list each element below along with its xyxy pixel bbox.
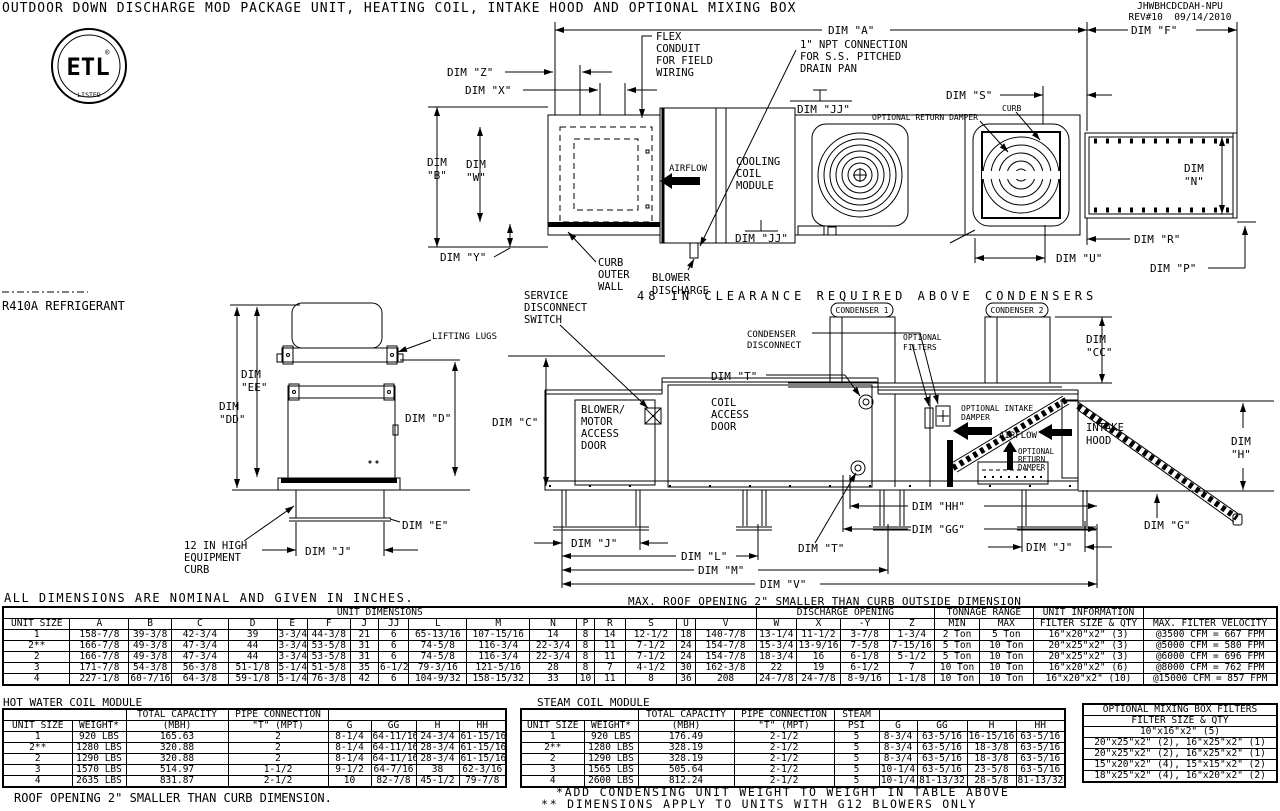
table-cell: 8 — [576, 630, 594, 641]
table-cell: 11 — [595, 652, 625, 663]
table-cell: 28-3/4 — [416, 743, 459, 754]
airflow-arrow-icon — [660, 173, 700, 189]
airflow-label: AIRFLOW — [669, 164, 708, 174]
table-cell: 176.49 — [638, 732, 734, 743]
table-cell: 81-13/32 — [917, 776, 967, 788]
dim-jj-top-label: DIM "JJ" — [797, 103, 850, 116]
table-cell: 140-7/8 — [695, 630, 756, 641]
table-cell: 79-7/8 — [459, 776, 506, 788]
table-cell: 4-1/2 — [625, 663, 677, 674]
hood-airflow-arrow-icon — [1038, 424, 1072, 440]
dim-b-label: DIM"B" — [427, 156, 447, 182]
table-cell: 31 — [350, 641, 378, 652]
table-cell: 6 — [378, 641, 408, 652]
column-header: FILTER SIZE & QTY — [1033, 619, 1144, 630]
table-cell: 61-15/16 — [459, 743, 506, 754]
table-cell: 208 — [695, 674, 756, 686]
table-cell: 59-1/8 — [228, 674, 277, 686]
column-header: (MBH) — [638, 721, 734, 732]
table-cell: 11-1/2 — [797, 630, 841, 641]
table-cell: 1280 LBS — [72, 743, 126, 754]
table-cell: 24 — [677, 641, 695, 652]
column-header: UNIT INFORMATION — [1033, 607, 1144, 619]
table-cell: 2-1/2 — [734, 776, 834, 788]
etl-listed-text: LISTED — [77, 91, 101, 99]
table-cell: 6-1/2 — [378, 663, 408, 674]
table-row: 2**166-7/849-3/847-3/4443-3/453-5/831674… — [3, 641, 1277, 652]
dim-p-label: DIM "P" — [1150, 262, 1196, 275]
column-header — [3, 709, 126, 721]
table-cell: 2-1/2 — [734, 765, 834, 776]
table-cell: @8000 CFM = 762 FPM — [1144, 663, 1277, 674]
table-cell: 3-3/4 — [277, 630, 307, 641]
column-header — [879, 709, 1065, 721]
table-cell: 10-1/4 — [879, 765, 917, 776]
table-cell: 63-5/16 — [917, 754, 967, 765]
table-row: 3171-7/854-3/856-3/851-1/85-1/451-5/8356… — [3, 663, 1277, 674]
table-cell: 22 — [756, 663, 797, 674]
table-cell: 9-1/2 — [328, 765, 371, 776]
table-cell: 10 — [328, 776, 371, 788]
column-header: "T" (MPT) — [228, 721, 328, 732]
table-cell: 3-7/8 — [840, 630, 889, 641]
nominal-dimensions-note: ALL DIMENSIONS ARE NOMINAL AND GIVEN IN … — [4, 591, 414, 605]
table-cell: 23-5/8 — [967, 765, 1016, 776]
table-cell: 74-5/8 — [409, 641, 467, 652]
table-cell: 2 — [521, 754, 584, 765]
table-cell: 812.24 — [638, 776, 734, 788]
table-cell: 19 — [797, 663, 841, 674]
table-cell: 24-3/4 — [416, 732, 459, 743]
dim-l-label: DIM "L" — [681, 550, 727, 563]
clearance-note: 48 IN CLEARANCE REQUIRED ABOVE CONDENSER… — [637, 289, 1097, 303]
table-cell: 60-7/16 — [129, 674, 172, 686]
table-cell: 8 — [576, 663, 594, 674]
table-cell: 56-3/8 — [171, 663, 228, 674]
drawing-sheet: OUTDOOR DOWN DISCHARGE MOD PACKAGE UNIT,… — [0, 0, 1280, 811]
table-cell: 76-3/8 — [307, 674, 350, 686]
table-cell: 24 — [677, 652, 695, 663]
table-cell: 8-1/4 — [328, 732, 371, 743]
table-cell: 53-5/8 — [307, 641, 350, 652]
table-cell: 7-15/16 — [889, 641, 935, 652]
plan-unit-outline — [548, 108, 1237, 258]
table-cell: 8 — [625, 674, 677, 686]
table-cell: 10 Ton — [935, 674, 980, 686]
dim-w-label: DIM"W" — [466, 158, 486, 184]
table-cell: 5-1/2 — [889, 652, 935, 663]
table-cell: 10 Ton — [979, 652, 1033, 663]
table-cell: 1-1/2 — [228, 765, 328, 776]
column-header: P — [576, 619, 594, 630]
column-header: FILTER SIZE & QTY — [1083, 716, 1277, 727]
table-cell: 3-3/4 — [277, 641, 307, 652]
column-header — [1144, 607, 1277, 619]
column-header: S — [625, 619, 677, 630]
table-cell: 31 — [350, 652, 378, 663]
dim-x-label: DIM "X" — [465, 84, 511, 97]
table-cell: 2** — [3, 743, 72, 754]
table-cell: 1280 LBS — [584, 743, 638, 754]
condenser2-label: CONDENSER 2 — [991, 306, 1044, 315]
table-cell: 121-5/16 — [467, 663, 530, 674]
equipment-curb-callout: 12 IN HIGHEQUIPMENTCURB — [184, 540, 247, 576]
table-cell: 1565 LBS — [584, 765, 638, 776]
table-cell: 28-5/8 — [967, 776, 1016, 788]
table-cell: 831.87 — [126, 776, 228, 788]
table-cell: 1-3/4 — [889, 630, 935, 641]
table-cell: @15000 CFM = 857 FPM — [1144, 674, 1277, 686]
column-header: V — [695, 619, 756, 630]
column-header: F — [307, 619, 350, 630]
table-cell: 63-5/16 — [1016, 765, 1065, 776]
optional-filters-callout: OPTIONALFILTERS — [903, 333, 942, 352]
dim-v-label: DIM "V" — [760, 578, 806, 591]
dim-hh-label: DIM "HH" — [912, 500, 965, 513]
table-cell: 63-5/16 — [1016, 732, 1065, 743]
lifting-lugs-label: LIFTING LUGS — [432, 332, 497, 342]
table-cell: 11 — [595, 674, 625, 686]
table-cell: 8-3/4 — [879, 743, 917, 754]
table-cell: 227-1/8 — [70, 674, 129, 686]
table-cell: 49-3/8 — [129, 641, 172, 652]
column-header: "T" (MPT) — [734, 721, 834, 732]
table-cell: 158-15/32 — [467, 674, 530, 686]
table-cell: 44-3/8 — [307, 630, 350, 641]
dim-dd-label: DIM"DD" — [219, 400, 246, 426]
table-cell: @3500 CFM = 667 FPM — [1144, 630, 1277, 641]
table-cell: 7 — [595, 663, 625, 674]
table-cell: 63-5/16 — [917, 765, 967, 776]
table-cell: 2 — [3, 652, 70, 663]
header-row: OPTIONAL MIXING BOX FILTERS — [1083, 704, 1277, 716]
table-cell: 5 Ton — [935, 652, 980, 663]
table-cell: 10-1/4 — [879, 776, 917, 788]
table-cell: 14 — [595, 630, 625, 641]
table-cell: 18-3/8 — [967, 743, 1016, 754]
table-cell: 10 — [576, 674, 594, 686]
table-cell: 10 Ton — [979, 641, 1033, 652]
column-header: C — [171, 619, 228, 630]
npt-drain-callout: 1" NPT CONNECTIONFOR S.S. PITCHEDDRAIN P… — [800, 39, 907, 75]
table-cell: 28-3/4 — [416, 754, 459, 765]
column-header: Z — [889, 619, 935, 630]
table-cell: 8-1/4 — [328, 754, 371, 765]
table-cell: 53-5/8 — [307, 652, 350, 663]
table-row: 1920 LBS165.6328-1/464-11/1624-3/461-15/… — [3, 732, 506, 743]
table-cell: 1290 LBS — [72, 754, 126, 765]
table-cell: 36 — [677, 674, 695, 686]
g12-blowers-footnote: ** DIMENSIONS APPLY TO UNITS WITH G12 BL… — [541, 797, 977, 811]
table-cell: 21 — [350, 630, 378, 641]
table-cell: 10 Ton — [979, 674, 1033, 686]
table-row: 2**1280 LBS328.192-1/258-3/463-5/1618-3/… — [521, 743, 1065, 754]
table-cell: 63-5/16 — [1016, 743, 1065, 754]
table-row: 31565 LBS505.642-1/2510-1/463-5/1623-5/8… — [521, 765, 1065, 776]
table-row: 1158-7/839-3/842-3/4393-3/444-3/821665-1… — [3, 630, 1277, 641]
table-row: 42635 LBS831.872-1/21082-7/845-1/279-7/8 — [3, 776, 506, 788]
cooling-coil-module-label: COOLINGCOILMODULE — [736, 156, 780, 192]
page-title: OUTDOOR DOWN DISCHARGE MOD PACKAGE UNIT,… — [2, 1, 796, 16]
optional-intake-damper-label: OPTIONAL INTAKEDAMPER — [961, 404, 1033, 422]
column-header: J — [350, 619, 378, 630]
dim-j-front-label: DIM "J" — [305, 545, 351, 558]
table-cell: 10 Ton — [979, 663, 1033, 674]
dim-y-label: DIM "Y" — [440, 251, 486, 264]
column-header: PSI — [834, 721, 879, 732]
column-header: B — [129, 619, 172, 630]
table-cell: 44 — [228, 641, 277, 652]
column-header: WEIGHT* — [584, 721, 638, 732]
column-header: PIPE CONNECTION — [734, 709, 834, 721]
table-cell: 62-3/16 — [459, 765, 506, 776]
table-row: 10"x16"x2" (5) — [1083, 727, 1277, 738]
condenser-disconnect-callout: CONDENSERDISCONNECT — [747, 330, 802, 351]
dim-jj-mid-label: DIM "JJ" — [735, 232, 788, 245]
table-cell: 64-11/16 — [371, 754, 416, 765]
table-cell: 514.97 — [126, 765, 228, 776]
table-row: 21290 LBS328.192-1/258-3/463-5/1618-3/86… — [521, 754, 1065, 765]
dim-d-label: DIM "D" — [405, 412, 451, 425]
etl-logo: ETL ® LISTED — [52, 29, 126, 103]
table-cell: 15"x20"x2" (4), 15"x15"x2" (2) — [1083, 760, 1277, 771]
table-cell: 328.19 — [638, 743, 734, 754]
column-header: TONNAGE RANGE — [935, 607, 1033, 619]
table-cell: 42 — [350, 674, 378, 686]
table-cell: 39 — [228, 630, 277, 641]
dim-u-label: DIM "U" — [1056, 252, 1102, 265]
table-cell: 3 — [521, 765, 584, 776]
table-cell: 18-3/4 — [756, 652, 797, 663]
dim-gg-label: DIM "GG" — [912, 523, 965, 536]
table-cell: 166-7/8 — [70, 652, 129, 663]
column-header: HH — [459, 721, 506, 732]
column-header: W — [756, 619, 797, 630]
table-cell: 20"x25"x2" (3) — [1033, 641, 1144, 652]
table-cell: 5 — [834, 732, 879, 743]
table-cell: 4 — [521, 776, 584, 788]
column-header: N — [530, 619, 577, 630]
table-cell: 328.19 — [638, 754, 734, 765]
table-cell: 47-3/4 — [171, 652, 228, 663]
side-unit-outline — [545, 303, 1274, 530]
table-cell: 5 Ton — [979, 630, 1033, 641]
table-cell: 2-1/2 — [734, 743, 834, 754]
refrigerant-note: R410A REFRIGERANT — [2, 299, 125, 313]
table-cell: 116-3/4 — [467, 641, 530, 652]
table-row: 2166-7/849-3/847-3/4443-3/453-5/831674-5… — [3, 652, 1277, 663]
table-cell: 5-1/4 — [277, 674, 307, 686]
table-row: 1920 LBS176.492-1/258-3/463-5/1616-15/16… — [521, 732, 1065, 743]
table-cell: 2 — [228, 732, 328, 743]
table-cell: 20"x25"x2" (3) — [1033, 652, 1144, 663]
table-cell: 8 — [576, 652, 594, 663]
column-header: L — [409, 619, 467, 630]
table-cell: 158-7/8 — [70, 630, 129, 641]
optional-return-damper-label: OPTIONAL RETURN DAMPER — [872, 113, 978, 122]
table-cell: 6-1/8 — [840, 652, 889, 663]
table-cell: 64-11/16 — [371, 743, 416, 754]
header-row: TOTAL CAPACITYPIPE CONNECTION — [3, 709, 506, 721]
column-header: WEIGHT* — [72, 721, 126, 732]
header-row: UNIT SIZEWEIGHT*(MBH)"T" (MPT)GGGHHH — [3, 721, 506, 732]
table-cell: 5-1/4 — [277, 663, 307, 674]
table-cell: @6000 CFM = 696 FPM — [1144, 652, 1277, 663]
table-cell: 18 — [677, 630, 695, 641]
table-cell: 4 — [3, 776, 72, 788]
table-cell: 54-3/8 — [129, 663, 172, 674]
table-cell: 64-3/8 — [171, 674, 228, 686]
airflow-side-label: AIRFLOW — [999, 431, 1038, 441]
table-cell: 16-15/16 — [967, 732, 1016, 743]
table-cell: 165.63 — [126, 732, 228, 743]
column-header — [328, 709, 506, 721]
table-cell: 39-3/8 — [129, 630, 172, 641]
table-cell: 10 Ton — [935, 663, 980, 674]
column-header: G — [879, 721, 917, 732]
table-row: 4227-1/860-7/1664-3/859-1/85-1/476-3/842… — [3, 674, 1277, 686]
flex-conduit-callout: FLEXCONDUITFOR FIELDWIRING — [656, 31, 713, 79]
table-cell: 7-1/2 — [625, 652, 677, 663]
table-cell: 10"x16"x2" (5) — [1083, 727, 1277, 738]
column-header: JJ — [378, 619, 408, 630]
table-cell: 28 — [530, 663, 577, 674]
column-header: E — [277, 619, 307, 630]
table-cell: 16"x20"x2" (6) — [1033, 663, 1144, 674]
table-cell: 5 Ton — [935, 641, 980, 652]
table-cell: 5 — [834, 754, 879, 765]
side-view: SERVICEDISCONNECTSWITCH DIM "C" BLOWER/M… — [492, 290, 1274, 591]
table-cell: 51-5/8 — [307, 663, 350, 674]
table-cell: 2-1/2 — [734, 732, 834, 743]
column-header: H — [416, 721, 459, 732]
table-cell: 1 — [3, 630, 70, 641]
table-cell: 2 — [3, 754, 72, 765]
column-header — [521, 709, 638, 721]
table-cell: 15-3/4 — [756, 641, 797, 652]
dim-j-left-label: DIM "J" — [571, 537, 617, 550]
table-cell: 1 — [3, 732, 72, 743]
table-cell: 5 — [834, 743, 879, 754]
table-cell: 24-7/8 — [756, 674, 797, 686]
table-cell: 38 — [416, 765, 459, 776]
table-row: 31570 LBS514.971-1/29-1/264-7/163862-3/1… — [3, 765, 506, 776]
header-row: UNIT SIZEWEIGHT*(MBH)"T" (MPT)PSIGGGHHH — [521, 721, 1065, 732]
column-header: UNIT SIZE — [3, 619, 70, 630]
dim-ee-label: DIM"EE" — [241, 368, 268, 394]
curb-outer-wall-label: CURBOUTERWALL — [598, 257, 630, 293]
column-header: MAX. FILTER VELOCITY — [1144, 619, 1277, 630]
unit-dimensions-table: UNIT DIMENSIONSDISCHARGE OPENINGTONNAGE … — [2, 606, 1278, 686]
etl-logo-text: ETL — [66, 53, 109, 81]
dim-j-right-label: DIM "J" — [1026, 541, 1072, 554]
dim-a-label: DIM "A" — [828, 24, 874, 37]
header-row: UNIT SIZEABCDEFJJJLMNPRSUVWX-YZMINMAXFIL… — [3, 619, 1277, 630]
curb-label: CURB — [1002, 104, 1021, 113]
table-cell: 63-5/16 — [1016, 754, 1065, 765]
table-cell: 8-9/16 — [840, 674, 889, 686]
table-cell: 2600 LBS — [584, 776, 638, 788]
table-cell: 6 — [378, 652, 408, 663]
column-header: X — [797, 619, 841, 630]
table-cell: 2635 LBS — [72, 776, 126, 788]
column-header: HH — [1016, 721, 1065, 732]
plan-dimension-lines — [428, 22, 1256, 270]
service-disconnect-callout: SERVICEDISCONNECTSWITCH — [524, 290, 588, 326]
column-header: M — [467, 619, 530, 630]
dim-f-label: DIM "F" — [1131, 24, 1177, 37]
column-header: GG — [371, 721, 416, 732]
condenser1-label: CONDENSER 1 — [836, 306, 889, 315]
table-cell: 2** — [3, 641, 70, 652]
column-header: UNIT DIMENSIONS — [3, 607, 756, 619]
column-header: UNIT SIZE — [521, 721, 584, 732]
table-cell: 3 — [3, 765, 72, 776]
table-cell: 20"x25"x2" (2), 16"x25"x2" (1) — [1083, 738, 1277, 749]
table-cell: 24-7/8 — [797, 674, 841, 686]
dim-r-label: DIM "R" — [1134, 233, 1180, 246]
table-cell: 30 — [677, 663, 695, 674]
doc-revision: REV#10 09/14/2010 — [1095, 12, 1265, 23]
table-row: 2**1280 LBS320.8828-1/464-11/1628-3/461-… — [3, 743, 506, 754]
table-cell: 1290 LBS — [584, 754, 638, 765]
table-cell: 2-1/2 — [228, 776, 328, 788]
front-view: DIM"EE" DIM"DD" DIM "D" LIFTING LUGS DIM… — [184, 303, 497, 576]
table-cell: 82-7/8 — [371, 776, 416, 788]
table-cell: 3 — [3, 663, 70, 674]
header-row: UNIT DIMENSIONSDISCHARGE OPENINGTONNAGE … — [3, 607, 1277, 619]
dim-c-label: DIM "C" — [492, 416, 538, 429]
table-cell: 171-7/8 — [70, 663, 129, 674]
table-cell: 8-3/4 — [879, 754, 917, 765]
plan-view: DIM "A" DIM "F" DIM "Z" DIM "X" DIM"B" D… — [427, 22, 1256, 297]
table-cell: @5000 CFM = 580 FPM — [1144, 641, 1277, 652]
table-cell: 79-3/16 — [409, 663, 467, 674]
table-cell: 16"x20"x2" (3) — [1033, 630, 1144, 641]
table-cell: 107-15/16 — [467, 630, 530, 641]
table-cell: 5 — [834, 765, 879, 776]
table-cell: 14 — [530, 630, 577, 641]
column-header: H — [967, 721, 1016, 732]
table-cell: 74-5/8 — [409, 652, 467, 663]
column-header: (MBH) — [126, 721, 228, 732]
table-cell: 8-3/4 — [879, 732, 917, 743]
table-cell: 12-1/2 — [625, 630, 677, 641]
column-header: A — [70, 619, 129, 630]
column-header: MIN — [935, 619, 980, 630]
return-airflow-arrow-icon — [1003, 441, 1017, 470]
table-cell: 4 — [3, 674, 70, 686]
table-row: 20"x25"x2" (2), 16"x25"x2" (1) — [1083, 749, 1277, 760]
table-cell: 7-1/2 — [625, 641, 677, 652]
table-cell: 22-3/4 — [530, 652, 577, 663]
dim-cc-label: DIM"CC" — [1086, 333, 1113, 359]
dim-m-label: DIM "M" — [698, 564, 744, 577]
table-cell: 63-5/16 — [917, 743, 967, 754]
table-cell: 51-1/8 — [228, 663, 277, 674]
column-header: PIPE CONNECTION — [228, 709, 328, 721]
table-cell: 8-1/4 — [328, 743, 371, 754]
dim-s-label: DIM "S" — [946, 89, 992, 102]
intake-airflow-arrow-icon — [953, 422, 992, 440]
table-row: 15"x20"x2" (4), 15"x15"x2" (2) — [1083, 760, 1277, 771]
table-cell: 20"x25"x2" (2), 16"x25"x2" (1) — [1083, 749, 1277, 760]
table-cell: 44 — [228, 652, 277, 663]
table-cell: 42-3/4 — [171, 630, 228, 641]
table-cell: 63-5/16 — [917, 732, 967, 743]
header-row: TOTAL CAPACITYPIPE CONNECTIONSTEAM — [521, 709, 1065, 721]
table-cell: 6 — [378, 674, 408, 686]
